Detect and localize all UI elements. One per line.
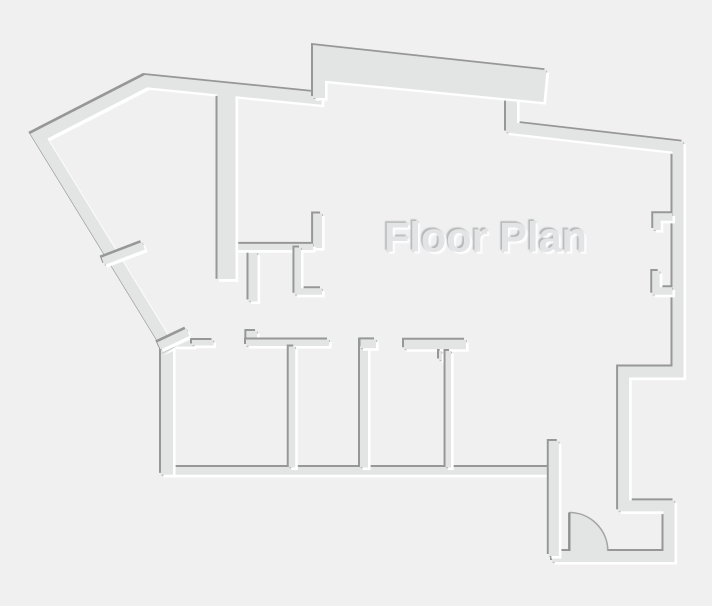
svg-text:Floor Plan: Floor Plan (384, 214, 587, 261)
